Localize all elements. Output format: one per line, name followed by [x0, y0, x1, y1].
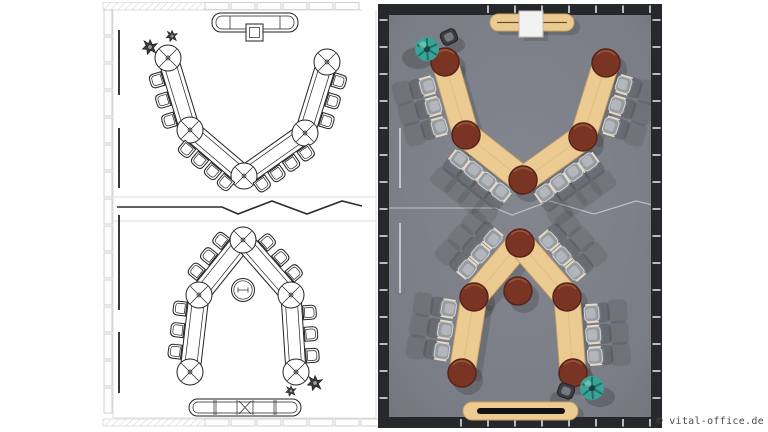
round-link-table — [448, 359, 476, 387]
chair — [170, 322, 185, 337]
window-frame-segment — [205, 419, 229, 426]
round-link-table — [292, 120, 318, 146]
cad-plan-panel — [100, 2, 385, 428]
chair — [168, 344, 183, 359]
window-frame-segment — [257, 419, 281, 426]
round-link-table — [314, 49, 340, 75]
chair — [585, 325, 603, 344]
center-round-table — [504, 277, 532, 305]
window-frame-segment — [257, 3, 281, 10]
chair — [306, 348, 320, 363]
window-frame-segment — [104, 307, 112, 332]
wall-left — [378, 4, 389, 428]
chair — [304, 326, 318, 341]
window-frame-segment — [335, 3, 359, 10]
window-frame-segment — [104, 226, 112, 251]
chair — [303, 305, 317, 320]
render-plant-bottom — [580, 376, 604, 400]
watermark: © vital-office.de — [657, 416, 764, 427]
sideboard-open-shelf — [477, 408, 565, 414]
wall-right — [651, 4, 662, 428]
render-panel — [378, 4, 662, 428]
round-link-table — [506, 229, 534, 257]
window-frame-segment — [104, 253, 112, 278]
window-frame-segment — [283, 3, 307, 10]
cad-wall-hatch-bottom — [103, 419, 205, 426]
render-sideboard-bottom — [463, 402, 578, 420]
window-frame-segment — [104, 118, 112, 143]
round-link-table — [460, 283, 488, 311]
chair — [173, 301, 188, 316]
render-plant-top — [415, 37, 439, 61]
window-frame-segment — [104, 145, 112, 170]
window-frame-segment — [309, 3, 333, 10]
window-frame-segment — [104, 280, 112, 305]
chair — [587, 346, 605, 365]
window-frame-segment — [231, 3, 255, 10]
round-link-table — [569, 123, 597, 151]
chair — [584, 304, 602, 323]
window-frame-segment — [205, 3, 229, 10]
window-frame-segment — [231, 419, 255, 426]
furniture-layout-image — [0, 0, 768, 432]
round-link-table — [177, 117, 203, 143]
window-frame-segment — [309, 419, 333, 426]
cad-sideboard-bottom — [189, 399, 301, 416]
window-frame-segment — [104, 199, 112, 224]
window-frame-segment — [104, 91, 112, 116]
round-link-table — [509, 166, 537, 194]
round-link-table — [186, 282, 212, 308]
round-link-table — [278, 282, 304, 308]
round-link-table — [231, 163, 257, 189]
layout-sheet: © vital-office.de — [0, 0, 768, 432]
round-link-table — [283, 359, 309, 385]
cad-wall-hatch-top — [103, 3, 205, 11]
center-round-table — [232, 279, 255, 302]
window-frame-segment — [104, 334, 112, 359]
round-link-table — [155, 45, 181, 71]
round-link-table — [230, 227, 256, 253]
round-link-table — [177, 359, 203, 385]
window-frame-segment — [104, 37, 112, 62]
round-link-table — [553, 283, 581, 311]
cad-lectern — [246, 24, 263, 41]
window-frame-segment — [104, 10, 112, 35]
round-link-table — [592, 49, 620, 77]
window-frame-segment — [104, 388, 112, 413]
window-frame-segment — [104, 64, 112, 89]
window-frame-segment — [104, 361, 112, 386]
window-frame-segment — [335, 419, 359, 426]
window-frame-segment — [283, 419, 307, 426]
render-screen — [519, 11, 543, 37]
round-link-table — [452, 121, 480, 149]
window-frame-segment — [104, 172, 112, 197]
